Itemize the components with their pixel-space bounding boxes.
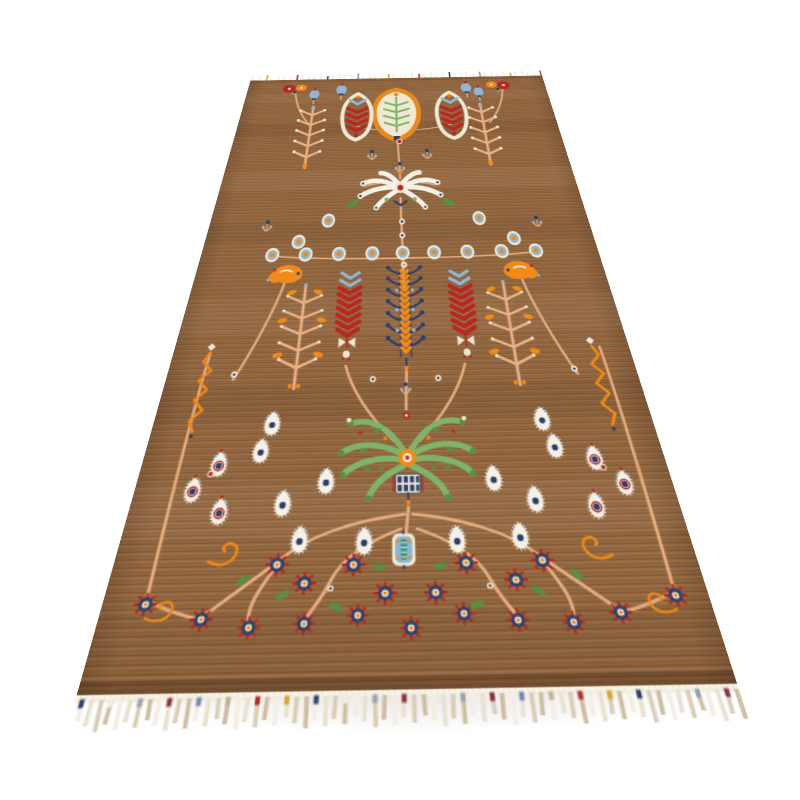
- bottom-fringe-strand: [262, 697, 270, 720]
- top-fringe-tassel: [278, 76, 281, 80]
- bottom-fringe-strand: [233, 697, 241, 729]
- bottom-fringe-strand: [172, 699, 182, 724]
- top-fringe-tassel: [313, 75, 315, 79]
- bottom-fringe-strand: [303, 696, 309, 728]
- top-fringe-tassel: [423, 73, 425, 77]
- top-fringe-tassel: [435, 74, 437, 77]
- top-fringe-tassel: [520, 71, 523, 76]
- bottom-fringe-strand: [331, 696, 338, 719]
- motif-navy-flower: [347, 605, 368, 626]
- bottom-fringe-strand: [392, 695, 397, 725]
- top-fringe-tassel: [343, 75, 345, 79]
- top-fringe-tassel: [369, 74, 371, 79]
- motif-navy-flower: [342, 554, 364, 575]
- bottom-fringe-strand: [242, 697, 250, 722]
- motif-eye-flower: [356, 528, 371, 554]
- bottom-fringe-colored-tassel: [489, 692, 495, 701]
- top-fringe-tassel: [465, 71, 468, 77]
- motif-navy-flower: [401, 617, 423, 639]
- bottom-fringe-strand: [617, 691, 627, 719]
- motif-navy-flower: [374, 583, 395, 605]
- bottom-fringe-strand: [675, 690, 684, 713]
- top-fringe-tassel: [266, 75, 269, 80]
- bottom-fringe-colored-tassel: [284, 696, 290, 705]
- bottom-fringe-strand: [656, 690, 666, 715]
- motif-navy-flower: [425, 582, 447, 604]
- bottom-fringe-strand: [588, 691, 596, 716]
- bottom-fringe-strand: [145, 699, 153, 720]
- bottom-fringe-strand: [500, 693, 507, 719]
- top-fringe-tassel: [453, 73, 455, 77]
- top-fringe-tassel: [252, 77, 255, 80]
- bottom-fringe-strand: [685, 690, 697, 718]
- top-fringe-tassel: [339, 74, 341, 79]
- rug-artwork: [36, 70, 783, 800]
- motif-blue-medallion: [392, 531, 416, 569]
- top-fringe-tassel: [483, 71, 486, 76]
- top-fringe-tassel: [442, 72, 444, 77]
- top-fringe-tassel: [271, 76, 274, 80]
- motif-navy-flower: [455, 552, 478, 573]
- top-fringe-tassel: [430, 72, 432, 78]
- bottom-fringe-strand: [202, 698, 211, 726]
- top-fringe-tassel: [448, 72, 450, 77]
- bottom-fringe-colored-tassel: [402, 694, 407, 703]
- top-fringe-tassel: [362, 75, 364, 78]
- top-fringe-tassel: [301, 74, 304, 79]
- top-fringe-tassel: [532, 71, 535, 75]
- bottom-fringe-strand: [558, 692, 567, 713]
- bottom-fringe-strand: [182, 698, 191, 728]
- bottom-fringe-strand: [362, 695, 367, 722]
- bottom-fringe-strand: [92, 700, 104, 732]
- bottom-fringe-strand: [353, 695, 358, 716]
- top-fringe-tassel: [357, 73, 359, 79]
- bottom-fringe-strand: [152, 699, 162, 726]
- top-fringe-tassel: [404, 73, 406, 78]
- bottom-fringe-strand: [272, 697, 279, 725]
- top-fringe-tassel: [502, 70, 505, 76]
- top-fringe-tassel: [393, 72, 395, 78]
- top-fringe-tassel: [418, 74, 420, 78]
- bottom-fringe-strand: [539, 692, 546, 715]
- top-fringe-tassel: [308, 76, 310, 80]
- top-fringe-tassel: [296, 75, 299, 80]
- top-fringe-tassel: [514, 71, 517, 76]
- top-fringe-tassel: [327, 76, 329, 79]
- top-fringe-tassel: [388, 74, 390, 78]
- top-fringe-tassel: [259, 76, 262, 81]
- bottom-fringe-strand: [215, 698, 222, 719]
- bottom-fringe-strand: [480, 693, 487, 721]
- bottom-fringe-colored-tassel: [313, 695, 318, 704]
- rug-photo: [76, 76, 738, 699]
- bottom-fringe-strand: [441, 694, 448, 726]
- product-photo-stage: [0, 0, 800, 800]
- bottom-fringe-strand: [412, 694, 417, 722]
- top-fringe-tassel: [526, 72, 529, 76]
- bottom-fringe-colored-tassel: [460, 693, 466, 702]
- bottom-fringe-strand: [422, 694, 428, 715]
- bottom-fringe-strand: [568, 692, 576, 718]
- bottom-fringe-strand: [323, 696, 329, 726]
- bottom-fringe-colored-tassel: [343, 695, 348, 704]
- bottom-fringe-strand: [292, 697, 299, 724]
- top-fringe-tassel: [495, 72, 498, 76]
- bottom-fringe-strand: [627, 691, 637, 712]
- top-fringe-tassel: [472, 73, 474, 76]
- top-fringe-tassel: [350, 75, 352, 79]
- top-fringe-tassel: [381, 74, 383, 78]
- bottom-fringe-strand: [704, 689, 716, 715]
- top-fringe-tassel: [411, 73, 413, 78]
- bottom-fringe-strand: [82, 700, 94, 727]
- top-fringe-tassel: [509, 73, 511, 76]
- top-fringe-tassel: [282, 74, 285, 80]
- top-fringe-tassel: [491, 72, 493, 76]
- top-fringe-tassel: [289, 77, 291, 80]
- bottom-fringe-strand: [529, 692, 538, 722]
- bottom-fringe-strand: [509, 693, 518, 725]
- bottom-fringe-strand: [597, 691, 608, 721]
- bottom-fringe-strand: [112, 700, 123, 730]
- top-fringe-tassel: [460, 73, 462, 77]
- bottom-fringe-strand: [451, 694, 456, 719]
- bottom-fringe-strand: [382, 695, 387, 720]
- bottom-fringe-strand: [734, 689, 748, 719]
- top-fringe-tassel: [374, 73, 376, 78]
- top-fringe-tassel: [320, 73, 322, 79]
- bottom-fringe-colored-tassel: [372, 694, 377, 703]
- top-fringe-tassel: [539, 70, 542, 75]
- top-fringe-tassel: [479, 72, 482, 77]
- top-fringe-tassel: [400, 75, 402, 78]
- bottom-fringe-strand: [122, 699, 133, 722]
- bottom-fringe-colored-tassel: [431, 693, 436, 702]
- bottom-fringe-strand: [470, 693, 475, 716]
- top-fringe-tassel: [332, 74, 334, 79]
